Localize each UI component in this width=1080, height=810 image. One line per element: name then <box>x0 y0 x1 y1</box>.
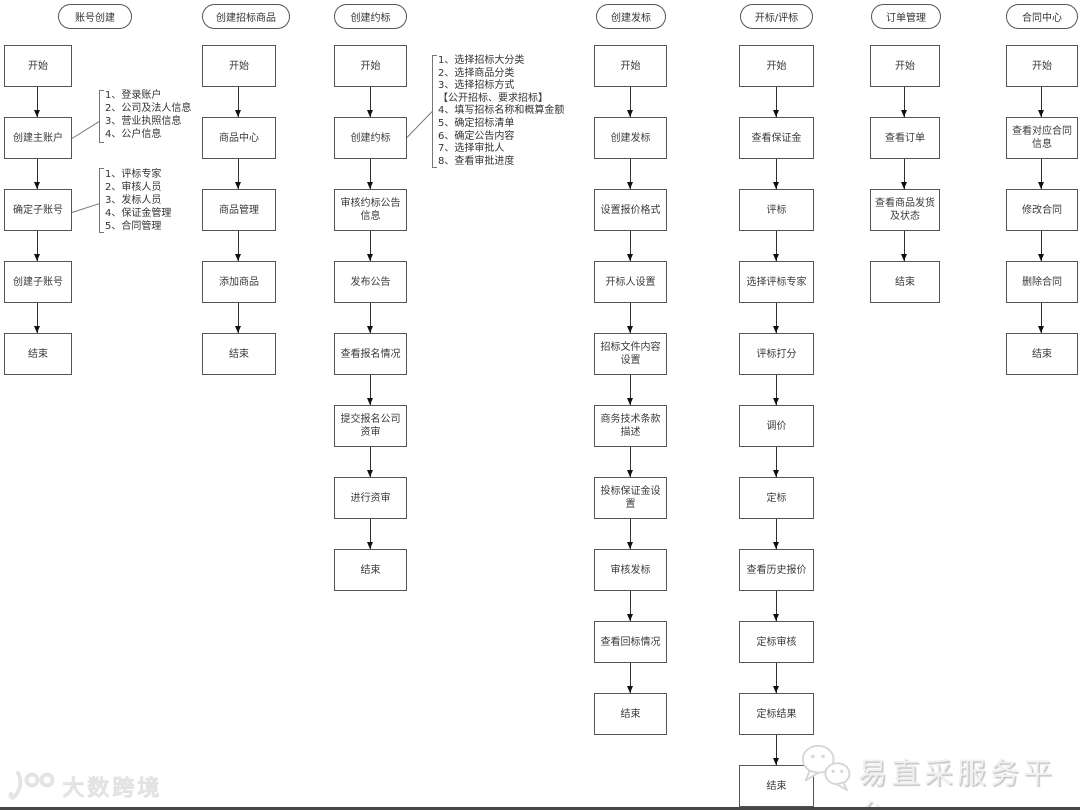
flow-node: 开始 <box>1006 45 1078 87</box>
flow-node: 设置报价格式 <box>594 189 667 231</box>
flow-arrow <box>1041 87 1042 117</box>
flow-arrow <box>370 303 371 333</box>
flow-node: 评标 <box>739 189 814 231</box>
lane-3-title: 创建约标 <box>334 4 407 29</box>
flow-node: 选择评标专家 <box>739 261 814 303</box>
flow-node: 调价 <box>739 405 814 447</box>
flow-arrow <box>630 231 631 261</box>
note-line: 3、选择招标方式 <box>438 80 564 93</box>
flow-arrow <box>630 375 631 405</box>
flow-arrow <box>776 303 777 333</box>
flow-arrow <box>776 591 777 621</box>
flow-arrow <box>37 159 38 189</box>
flow-node: 查看商品发货及状态 <box>870 189 940 231</box>
note-line: 6、确定公告内容 <box>438 131 564 144</box>
lane-7-title: 合同中心 <box>1006 4 1078 29</box>
dashu-watermark: 大数跨境 <box>8 770 162 802</box>
note-line: 7、选择审批人 <box>438 143 564 156</box>
note-bracket <box>99 90 104 143</box>
flow-node: 审核约标公告信息 <box>334 189 407 231</box>
lane-1-title: 账号创建 <box>58 4 132 29</box>
flow-arrow <box>370 375 371 405</box>
note-line: 8、查看审批进度 <box>438 156 564 169</box>
flow-arrow <box>904 87 905 117</box>
flow-node: 结束 <box>594 693 667 735</box>
flow-arrow <box>776 447 777 477</box>
flowchart: 账号创建 创建招标商品 创建约标 创建发标 开标/评标 订单管理 合同中心 开始… <box>0 0 1080 810</box>
flow-node: 开始 <box>594 45 667 87</box>
note-line: 2、审核人员 <box>105 181 171 194</box>
lane-5-title: 开标/评标 <box>740 4 813 29</box>
flow-arrow <box>630 87 631 117</box>
flow-node: 查看对应合同信息 <box>1006 117 1078 159</box>
flow-node: 审核发标 <box>594 549 667 591</box>
flow-arrow <box>37 303 38 333</box>
flow-arrow <box>630 663 631 693</box>
flow-arrow <box>776 519 777 549</box>
flow-node: 开标人设置 <box>594 261 667 303</box>
note-line: 4、保证金管理 <box>105 207 171 220</box>
lane-2-title: 创建招标商品 <box>202 4 290 29</box>
flow-node: 投标保证金设置 <box>594 477 667 519</box>
flow-arrow <box>776 735 777 765</box>
flow-arrow <box>1041 159 1042 189</box>
flow-node: 结束 <box>202 333 276 375</box>
flow-node: 定标审核 <box>739 621 814 663</box>
flow-node: 添加商品 <box>202 261 276 303</box>
flow-node: 创建约标 <box>334 117 407 159</box>
flow-node: 结束 <box>1006 333 1078 375</box>
note-line: 2、选择商品分类 <box>438 68 564 81</box>
flow-node: 结束 <box>4 333 72 375</box>
flow-node: 确定子账号 <box>4 189 72 231</box>
flow-arrow <box>238 303 239 333</box>
flow-arrow <box>776 663 777 693</box>
flow-arrow <box>37 87 38 117</box>
flow-node: 结束 <box>870 261 940 303</box>
flow-arrow <box>238 87 239 117</box>
flow-arrow <box>776 375 777 405</box>
flow-node: 查看回标情况 <box>594 621 667 663</box>
flow-arrow <box>630 591 631 621</box>
note-line: 2、公司及法人信息 <box>105 102 191 115</box>
note-line: 1、登录账户 <box>105 89 191 102</box>
flow-node: 开始 <box>870 45 940 87</box>
flow-arrow <box>630 159 631 189</box>
yizhicai-watermark-text: 易直采服务平台 <box>858 750 1080 810</box>
flow-arrow <box>1041 303 1042 333</box>
note-line: 1、评标专家 <box>105 168 171 181</box>
flow-node: 查看历史报价 <box>739 549 814 591</box>
flow-arrow <box>37 231 38 261</box>
flow-arrow <box>370 447 371 477</box>
flow-node: 创建主账户 <box>4 117 72 159</box>
note-line: 3、发标人员 <box>105 194 171 207</box>
flow-arrow <box>1041 231 1042 261</box>
yizhicai-watermark: 易直采服务平台 <box>798 741 1080 810</box>
flow-node: 修改合同 <box>1006 189 1078 231</box>
flow-node: 招标文件内容设置 <box>594 333 667 375</box>
flow-node: 进行资审 <box>334 477 407 519</box>
flow-arrow <box>238 159 239 189</box>
flow-node: 开始 <box>4 45 72 87</box>
note-list: 1、登录账户 2、公司及法人信息 3、营业执照信息 4、公户信息 <box>105 89 191 141</box>
flow-arrow <box>630 447 631 477</box>
flow-arrow <box>370 87 371 117</box>
flow-arrow <box>238 231 239 261</box>
flow-node: 商品管理 <box>202 189 276 231</box>
flow-node: 创建发标 <box>594 117 667 159</box>
flow-node: 发布公告 <box>334 261 407 303</box>
lane-4-title: 创建发标 <box>596 4 666 29</box>
note-connector-line <box>407 111 433 138</box>
flow-arrow <box>776 231 777 261</box>
flow-node: 开始 <box>739 45 814 87</box>
flow-node: 定标 <box>739 477 814 519</box>
note-line: 4、填写招标名称和概算金额 <box>438 105 564 118</box>
flow-node: 删除合同 <box>1006 261 1078 303</box>
flow-arrow <box>776 159 777 189</box>
flow-node: 商务技术条款描述 <box>594 405 667 447</box>
flow-node: 评标打分 <box>739 333 814 375</box>
flow-node: 开始 <box>202 45 276 87</box>
note-bracket <box>432 55 437 168</box>
note-line: 5、合同管理 <box>105 220 171 233</box>
note-line: 1、选择招标大分类 <box>438 55 564 68</box>
flow-node: 查看订单 <box>870 117 940 159</box>
dashu-logo-icon <box>8 770 56 802</box>
flow-node: 结束 <box>334 549 407 591</box>
flow-node: 创建子账号 <box>4 261 72 303</box>
note-list: 1、选择招标大分类 2、选择商品分类 3、选择招标方式 【公开招标、要求招标】 … <box>438 55 564 168</box>
flow-arrow <box>370 231 371 261</box>
wechat-icon <box>798 741 852 793</box>
note-connector-line <box>72 203 100 213</box>
flow-node: 开始 <box>334 45 407 87</box>
dashu-watermark-text: 大数跨境 <box>62 770 162 802</box>
note-line: 【公开招标、要求招标】 <box>438 93 564 106</box>
flow-arrow <box>630 519 631 549</box>
flow-node: 商品中心 <box>202 117 276 159</box>
note-line: 3、营业执照信息 <box>105 115 191 128</box>
flow-arrow <box>630 303 631 333</box>
lane-6-title: 订单管理 <box>871 4 941 29</box>
flow-node: 查看报名情况 <box>334 333 407 375</box>
flow-arrow <box>776 87 777 117</box>
note-line: 5、确定招标清单 <box>438 118 564 131</box>
note-connector-line <box>72 121 100 139</box>
note-bracket <box>99 168 104 233</box>
flow-arrow <box>904 231 905 261</box>
flow-arrow <box>370 519 371 549</box>
flow-node: 查看保证金 <box>739 117 814 159</box>
flow-arrow <box>370 159 371 189</box>
flow-node: 提交报名公司资审 <box>334 405 407 447</box>
flow-node: 定标结果 <box>739 693 814 735</box>
note-line: 4、公户信息 <box>105 128 191 141</box>
note-list: 1、评标专家 2、审核人员 3、发标人员 4、保证金管理 5、合同管理 <box>105 168 171 233</box>
flow-arrow <box>904 159 905 189</box>
